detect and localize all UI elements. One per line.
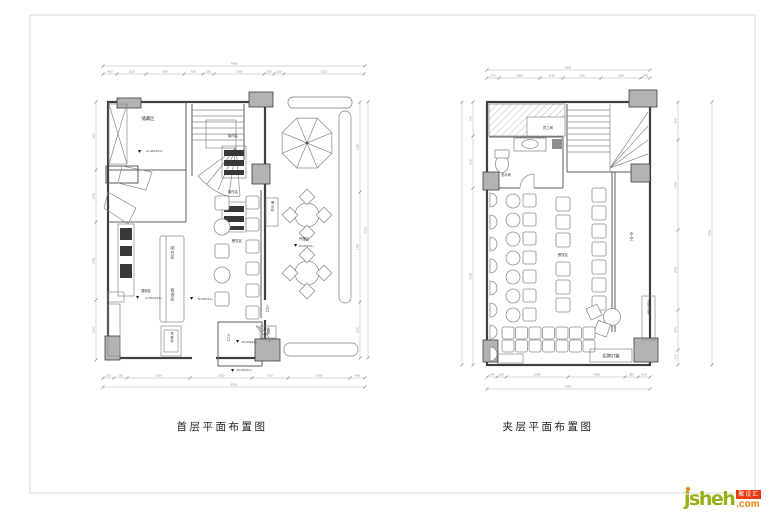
dim-label: 1560: [516, 74, 523, 78]
label-lightbox-bottom: 招牌灯箱: [602, 353, 620, 360]
dim-label: 380: [674, 118, 678, 123]
label-lightbox-side: 招牌灯箱: [646, 299, 650, 315]
logo-dot-icon: [686, 487, 690, 491]
drawing-sheet: 储藏区 +0.260(FFL) 操作区 操作区 展示柜: [0, 0, 780, 520]
dim-label: 4940: [565, 66, 572, 70]
dim-label: 160: [499, 373, 504, 377]
dim-label: 240: [490, 74, 495, 78]
dim-label: 5300: [469, 272, 473, 279]
dim-label: 7620: [364, 226, 368, 233]
dim-label: 2300: [356, 143, 360, 150]
washroom: 洗手间: [495, 138, 562, 188]
mezzanine-plan: 员工间 洗手间: [461, 66, 714, 433]
dim-label: 7660: [231, 62, 238, 66]
label-entrance-main: 入口: [226, 332, 231, 341]
dim-label: 740: [469, 116, 473, 121]
room-label-dining-mezz: 餐饮区: [558, 252, 569, 257]
label-prep: 备餐: [266, 326, 270, 335]
dining-furniture: 餐饮区 中空: [490, 188, 635, 363]
room-label-void: 中空: [630, 231, 635, 242]
dim-label: 5490: [565, 385, 572, 389]
logo-right-block: 聚设汇 .com: [736, 490, 761, 510]
dim-label: 1560: [618, 74, 625, 78]
dim-label: 1140: [548, 74, 555, 78]
label-cashier: 收银区: [171, 287, 176, 302]
dim-label: 7550: [708, 229, 712, 236]
label-display-cabinet: 展示柜: [270, 200, 274, 212]
label-entrance-side: 入口: [265, 303, 270, 312]
level-label-mixing: +0.260(FFL): [144, 296, 161, 300]
first-floor-plan: 储藏区 +0.260(FFL) 操作区 操作区 展示柜: [92, 62, 370, 433]
dining-furniture: 餐饮区 ±0.00(FFL): [190, 196, 259, 319]
jsheh-tld: .com: [736, 500, 759, 510]
jsheh-badge: 聚设汇: [736, 490, 761, 499]
level-label-outdoor: ±0.00(FFL): [298, 244, 313, 248]
room-label-staff: 员工间: [543, 125, 554, 130]
first-floor-title: 首层平面布置图: [177, 420, 268, 433]
dim-label: 1460: [593, 373, 600, 377]
dim-label: 1500: [674, 266, 678, 273]
dim-label: 240: [641, 373, 646, 377]
dim-label: 420: [674, 354, 678, 359]
dim-label: 3040: [534, 373, 541, 377]
dim-label: 850: [356, 327, 360, 332]
level-label-dining: ±0.00(FFL): [197, 297, 212, 301]
dim-label: 950: [674, 327, 678, 332]
storage-room: 储藏区 +0.260(FFL): [104, 104, 163, 224]
dim-label: 620: [469, 159, 473, 164]
dim-label: 1030: [218, 374, 225, 378]
dim-label: 3160: [155, 374, 162, 378]
dim-label: 620: [267, 374, 272, 378]
dim-label: 380: [162, 70, 167, 74]
room-label-mixing: 调制区: [141, 288, 152, 293]
jsheh-logo-text: jsheh: [684, 490, 734, 509]
level-label-ground: ±0.00(FFL): [236, 368, 251, 372]
page-frame: [30, 15, 755, 493]
dim-label: 450: [355, 374, 360, 378]
label-bar: 吧台区: [171, 246, 176, 260]
outdoor-area: 外摆区 ±0.00(FFL): [282, 97, 358, 356]
dim-label: 1750: [92, 257, 96, 264]
dim-label: 350: [629, 373, 634, 377]
jsheh-logo[interactable]: jsheh 聚设汇 .com: [684, 490, 761, 510]
dim-label: 240: [489, 373, 494, 377]
bar-counter: 吧台区 收银区 蛋糕柜: [160, 236, 184, 356]
staircase: [567, 104, 648, 172]
dim-label: 1130: [128, 70, 135, 74]
dim-label: 680: [92, 133, 96, 138]
dim-label: 250: [206, 70, 211, 74]
dim-label: 450: [107, 70, 112, 74]
dim-label: 1700: [356, 243, 360, 250]
level-label-storage: +0.260(FFL): [145, 149, 162, 153]
dim-label: 2760: [316, 374, 323, 378]
room-label-storage: 储藏区: [142, 115, 156, 122]
dim-label: 150: [106, 374, 111, 378]
dim-label: 2920: [92, 326, 96, 333]
room-label-work-2: 操作区: [228, 189, 239, 194]
staff-room: 员工间: [543, 125, 554, 130]
room-label-outdoor: 外摆区: [299, 236, 310, 241]
mezzanine-title: 夹层平面布置图: [503, 420, 594, 433]
dim-label: 620: [191, 70, 196, 74]
dim-label: 2120: [321, 70, 328, 74]
dim-label: 250: [266, 70, 271, 74]
dim-label: 2260: [236, 70, 243, 74]
label-cake-cabinet: 蛋糕柜: [170, 331, 174, 343]
dim-label: 200: [276, 70, 281, 74]
dim-label: 2250: [92, 192, 96, 199]
room-label-dining: 餐饮区: [232, 238, 243, 243]
room-label-work-1: 操作区: [228, 133, 239, 138]
room-label-washroom: 洗手间: [501, 172, 512, 177]
dim-label: 200: [579, 74, 584, 78]
dim-label: 130: [118, 374, 123, 378]
dim-label: 8300: [231, 383, 238, 387]
dim-label: 2300: [674, 181, 678, 188]
dim-label: 240: [643, 74, 648, 78]
level-label-entrance: ±0.00(FFL): [241, 340, 256, 344]
